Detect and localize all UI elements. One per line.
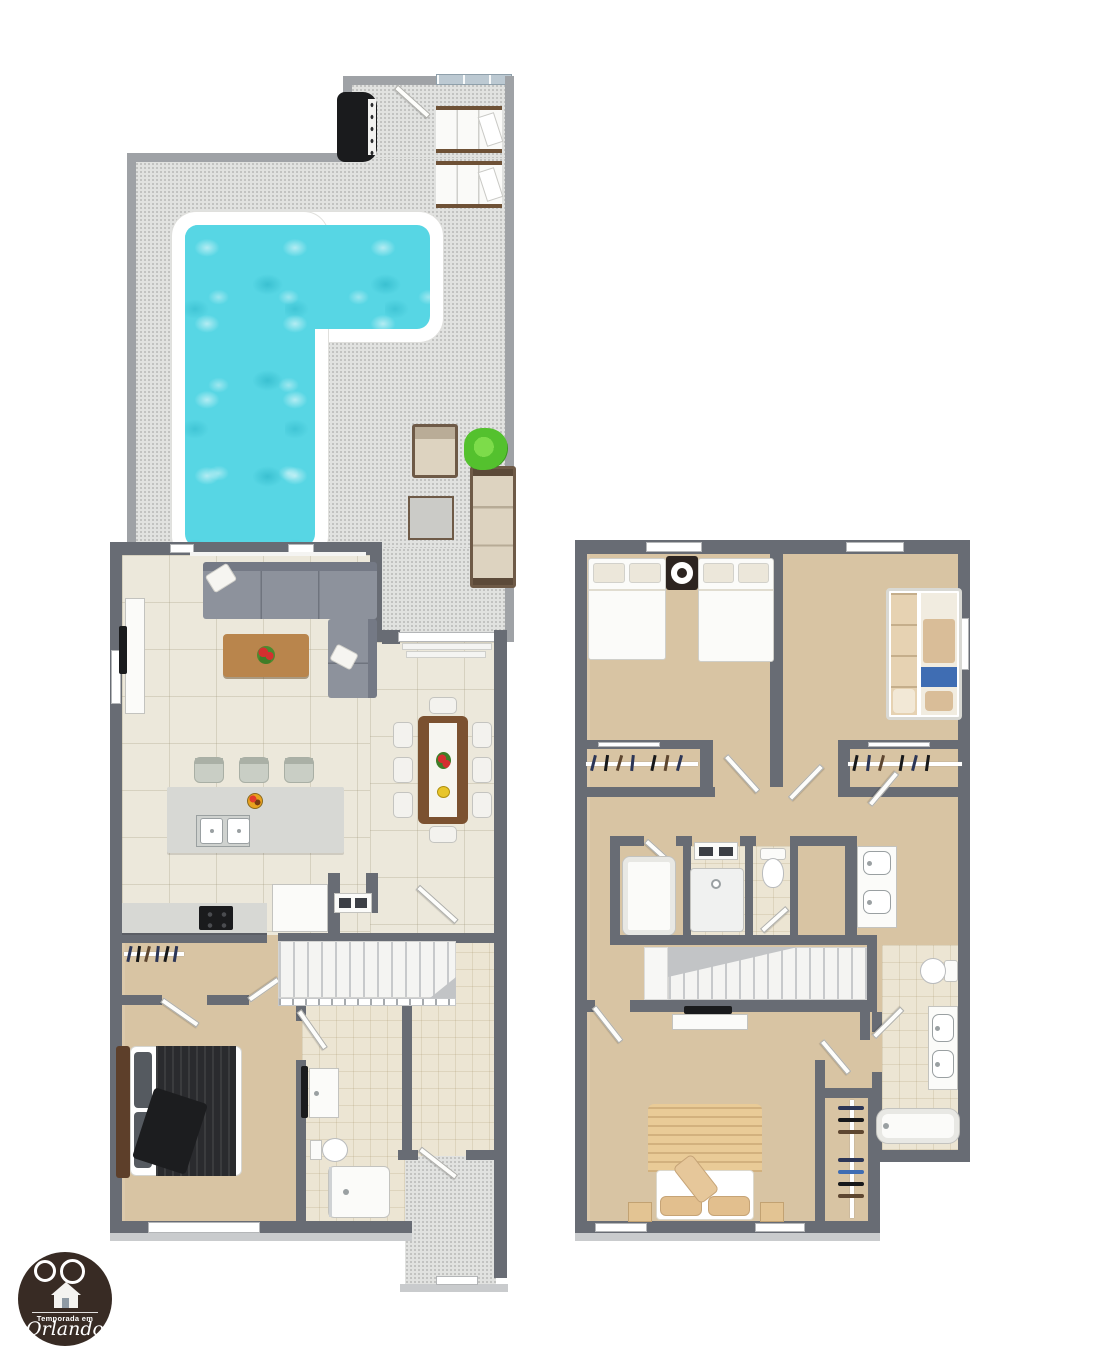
wall — [575, 540, 587, 1234]
bunk-blue-mat — [921, 667, 957, 687]
nightstand — [760, 1202, 784, 1222]
double-bed — [588, 558, 666, 660]
bunk-cushion — [923, 619, 955, 663]
dining-table — [418, 716, 468, 824]
wall — [610, 836, 620, 942]
kitchen-sink — [227, 818, 250, 844]
dining-chair — [472, 722, 492, 748]
dining-chair — [429, 826, 457, 843]
outdoor-armchair — [412, 424, 458, 478]
clothes-hanger — [838, 1106, 864, 1110]
wall — [610, 935, 877, 945]
kitchen-counter — [122, 903, 267, 933]
tv-console — [125, 598, 145, 714]
window — [595, 1223, 647, 1232]
fruit-plate — [437, 786, 450, 798]
wall — [868, 1150, 970, 1162]
bar-stool — [239, 757, 269, 783]
shower-glass — [329, 1167, 332, 1217]
window — [148, 1222, 260, 1233]
cooktop — [199, 906, 233, 930]
bunk-pillow — [925, 691, 953, 711]
patio-step — [402, 643, 492, 650]
logo-wordmark: Orlando — [18, 1318, 112, 1340]
brand-logo: Temporada em Orlando — [18, 1252, 112, 1346]
window — [755, 1223, 805, 1232]
flower-centerpiece — [436, 752, 451, 769]
fan — [671, 562, 693, 584]
blanket-fold — [589, 589, 665, 591]
nightstand — [666, 556, 698, 590]
toilet-bowl — [920, 958, 946, 984]
closet-door-track — [868, 742, 930, 747]
outdoor-sofa — [470, 466, 516, 588]
exterior-mask — [880, 1150, 958, 1235]
pool-water — [185, 225, 315, 547]
closet-rod — [848, 762, 962, 766]
deck-wall — [343, 76, 440, 85]
dining-chair — [393, 757, 413, 783]
table-runner — [429, 723, 457, 817]
toilet-tank — [310, 1140, 322, 1160]
bathtub-master — [876, 1108, 960, 1144]
bunk-bed — [886, 588, 962, 720]
master-bed-duvet — [648, 1104, 762, 1172]
grill-grate — [368, 99, 376, 155]
wall — [110, 933, 267, 943]
deck-wall — [127, 153, 351, 162]
wall — [790, 836, 846, 846]
microwave-shelf — [334, 893, 372, 913]
fruit-bowl — [247, 793, 263, 809]
nightstand — [628, 1202, 652, 1222]
wall — [815, 1060, 825, 1222]
wall — [790, 846, 798, 938]
shower-2 — [690, 868, 744, 932]
clothes-hanger — [838, 1182, 864, 1186]
closet-rod — [586, 762, 698, 766]
bed1-headboard — [116, 1046, 130, 1178]
wall — [845, 836, 857, 942]
sofa-arm — [473, 578, 513, 585]
toilet-bowl — [322, 1138, 348, 1162]
house-icon — [46, 1282, 84, 1308]
mickey-ear-icon — [60, 1259, 85, 1284]
vanity-sink — [932, 1050, 954, 1078]
tv-console-2 — [672, 1014, 748, 1030]
refrigerator — [272, 884, 328, 932]
sun-lounger — [436, 106, 502, 153]
wall — [630, 1000, 870, 1012]
clothes-hanger — [838, 1130, 864, 1134]
screen-enclosure-panel — [436, 74, 512, 85]
lounger-headrest — [478, 167, 504, 202]
bar-stool — [194, 757, 224, 783]
bath1-mirror — [301, 1066, 308, 1118]
closet-door-track — [598, 742, 660, 747]
wall — [860, 1012, 870, 1040]
shower — [328, 1166, 390, 1218]
bed-pillow — [738, 563, 769, 583]
vanity-sink — [863, 890, 891, 914]
master-bed-pillow — [708, 1196, 750, 1216]
bed-pillow — [629, 563, 661, 583]
logo-rule — [32, 1312, 98, 1313]
double-bed — [698, 558, 774, 662]
clothes-hanger — [838, 1158, 864, 1162]
wall — [825, 1088, 880, 1098]
washer-dryer — [694, 842, 738, 860]
wall — [207, 995, 249, 1005]
wall — [494, 630, 507, 1278]
wall — [466, 1150, 496, 1160]
wall — [838, 787, 970, 797]
tv — [119, 626, 127, 674]
dining-chair — [472, 757, 492, 783]
bbq-grill — [337, 92, 377, 162]
wall — [676, 836, 692, 846]
wall — [745, 846, 753, 938]
outdoor-side-table — [408, 496, 454, 540]
sun-lounger — [436, 161, 502, 208]
dining-chair — [429, 697, 457, 714]
armchair-back — [415, 427, 455, 439]
tv-2 — [684, 1006, 732, 1014]
bath1-vanity — [309, 1068, 339, 1118]
bed-pillow — [703, 563, 734, 583]
blanket-fold — [699, 589, 773, 591]
wall — [867, 935, 877, 1012]
stair-railing — [278, 998, 456, 1006]
wall — [740, 836, 756, 846]
patio-step — [406, 651, 486, 658]
window-sill — [190, 552, 366, 556]
toilet-tank — [944, 960, 958, 982]
wall — [398, 1150, 418, 1160]
lounger-headrest — [478, 112, 504, 147]
wall — [110, 995, 162, 1005]
bed1-pillow — [134, 1052, 152, 1108]
sliding-patio-door — [398, 632, 498, 642]
outer-trim — [400, 1284, 508, 1292]
outer-trim — [110, 1233, 412, 1241]
bathtub-2 — [622, 856, 676, 936]
bunk-pillow-white — [893, 689, 915, 713]
clothes-hanger — [838, 1170, 864, 1174]
dining-chair — [472, 792, 492, 818]
mickey-ear-icon — [34, 1260, 56, 1282]
staircase-first-floor — [278, 941, 456, 998]
sofa-arm — [473, 469, 513, 476]
bed-pillow — [593, 563, 625, 583]
floorplan-image: Temporada em Orlando — [0, 0, 1106, 1366]
toilet-bowl — [762, 858, 784, 888]
window — [846, 542, 904, 552]
wall — [402, 1005, 412, 1150]
coffee-table — [223, 634, 309, 677]
dining-chair — [393, 722, 413, 748]
vanity-sink — [863, 851, 891, 875]
dining-chair — [393, 792, 413, 818]
clothes-hanger — [838, 1194, 864, 1198]
kitchen-sink — [200, 818, 223, 844]
bar-stool — [284, 757, 314, 783]
deck-wall — [127, 153, 136, 548]
vanity-sink — [932, 1014, 954, 1042]
stair-landing — [644, 947, 668, 1000]
window — [646, 542, 702, 552]
clothes-hanger — [838, 1118, 864, 1122]
wall — [575, 787, 715, 797]
flower-arrangement — [257, 646, 275, 664]
front-door — [436, 1276, 478, 1285]
outer-trim — [575, 1233, 880, 1241]
